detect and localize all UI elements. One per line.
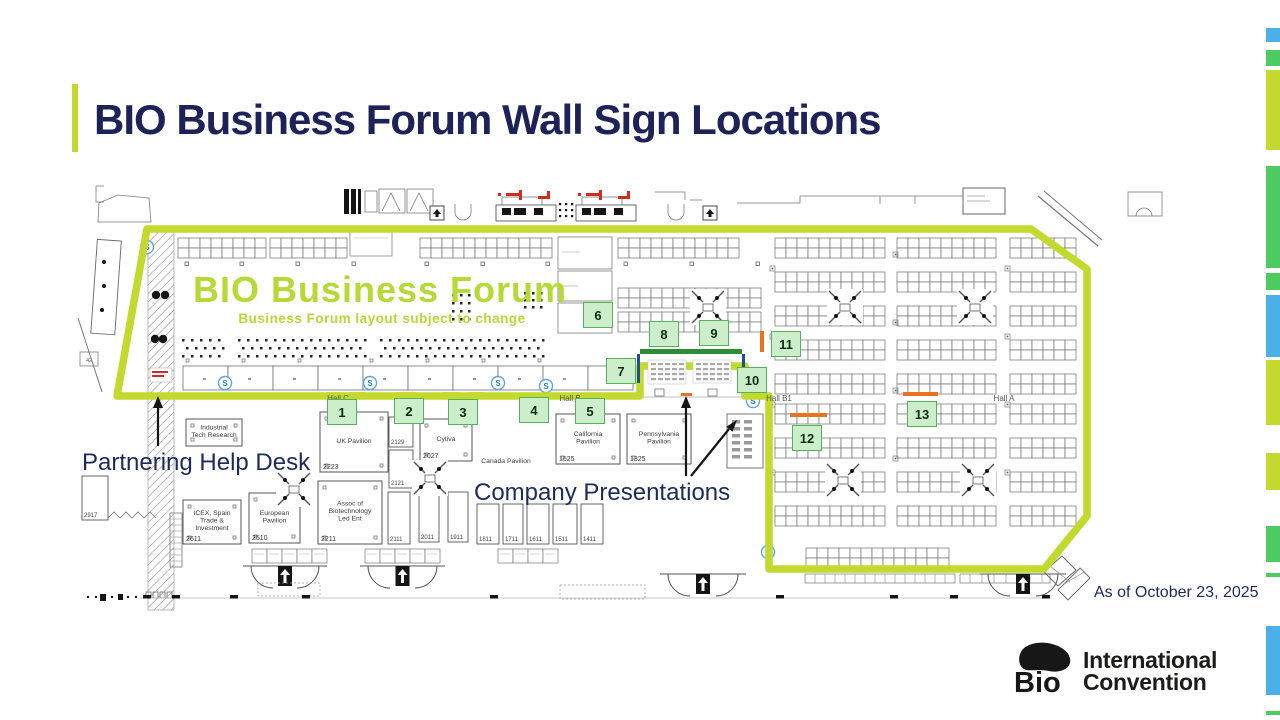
svg-text:2917: 2917 [84, 513, 98, 519]
as-of-date: As of October 23, 2025 [1094, 584, 1259, 602]
svg-text:1611: 1611 [529, 537, 543, 543]
edge-bar-6 [1266, 295, 1280, 357]
svg-text:1411: 1411 [583, 537, 597, 543]
edge-bar-5 [1266, 273, 1280, 290]
wall-sign-8: 8 [649, 321, 679, 347]
svg-text:Canada Pavilion: Canada Pavilion [481, 458, 531, 465]
partnering-help-desk-label: Partnering Help Desk [82, 449, 310, 477]
wall-sign-5: 5 [575, 398, 605, 424]
svg-text:2611: 2611 [186, 536, 201, 543]
edge-bar-4 [1266, 166, 1280, 268]
svg-text:2027: 2027 [423, 453, 439, 460]
wall-sign-4: 4 [519, 397, 549, 423]
wall-sign-6: 6 [583, 302, 613, 328]
svg-text:Hall A: Hall A [994, 394, 1016, 403]
svg-text:1525: 1525 [559, 456, 575, 463]
svg-text:2510: 2510 [252, 535, 268, 542]
edge-bar-10 [1266, 573, 1280, 577]
edge-bar-11 [1266, 626, 1280, 695]
svg-text:1511: 1511 [555, 537, 569, 543]
svg-text:2121: 2121 [391, 481, 405, 487]
wall-sign-10: 10 [737, 367, 767, 393]
slide: BIO Business Forum Wall Sign Locations 4… [0, 0, 1280, 720]
svg-text:S: S [495, 379, 501, 388]
bio-logo-text: International Convention [1083, 649, 1217, 693]
wall-sign-13: 13 [907, 401, 937, 427]
wall-sign-9: 9 [699, 320, 729, 346]
svg-text:S: S [543, 382, 549, 391]
wall-sign-1: 1 [327, 399, 357, 425]
edge-bar-9 [1266, 526, 1280, 562]
wall-sign-7: 7 [606, 358, 636, 384]
edge-bar-12 [1266, 711, 1280, 715]
svg-text:1325: 1325 [630, 456, 646, 463]
svg-text:EuropeanPavilion: EuropeanPavilion [260, 510, 290, 525]
bio-leaf-icon: Bio [1014, 640, 1076, 696]
edge-bar-1 [1266, 28, 1280, 42]
svg-text:2129: 2129 [391, 440, 405, 446]
svg-text:Hall B1: Hall B1 [766, 394, 792, 403]
bio-logo-mark-icon: Bio [1014, 640, 1076, 701]
svg-text:2223: 2223 [323, 464, 339, 471]
svg-text:2211: 2211 [321, 536, 336, 543]
logo-line2: Convention [1083, 669, 1207, 695]
edge-bar-2 [1266, 50, 1280, 66]
svg-text:1811: 1811 [479, 537, 493, 543]
svg-text:Bio: Bio [1014, 667, 1061, 696]
edge-bar-3 [1266, 70, 1280, 150]
wall-sign-11: 11 [771, 331, 801, 357]
svg-text:Cytiva: Cytiva [437, 436, 456, 443]
forum-subtitle: Business Forum layout subject to change [238, 311, 525, 326]
edge-bar-7 [1266, 360, 1280, 425]
svg-text:2111: 2111 [390, 537, 403, 543]
wall-sign-2: 2 [394, 398, 424, 424]
edge-bar-8 [1266, 453, 1280, 490]
svg-text:1911: 1911 [450, 535, 464, 541]
svg-text:UK Pavilion: UK Pavilion [336, 438, 371, 445]
floor-plan-map: 42IndustrialTech ResearchUK Pavilion2223… [0, 0, 1280, 720]
wall-sign-12: 12 [792, 425, 822, 451]
svg-text:S: S [367, 379, 373, 388]
svg-text:2011: 2011 [421, 535, 435, 541]
svg-text:S: S [222, 379, 228, 388]
forum-title: BIO Business Forum [193, 269, 567, 310]
bio-international-convention-logo: Bio International Convention [1014, 640, 1217, 701]
svg-text:1711: 1711 [505, 537, 519, 543]
company-presentations-label: Company Presentations [474, 479, 730, 507]
wall-sign-3: 3 [448, 399, 478, 425]
svg-text:CaliforniaPavilion: CaliforniaPavilion [574, 431, 603, 446]
